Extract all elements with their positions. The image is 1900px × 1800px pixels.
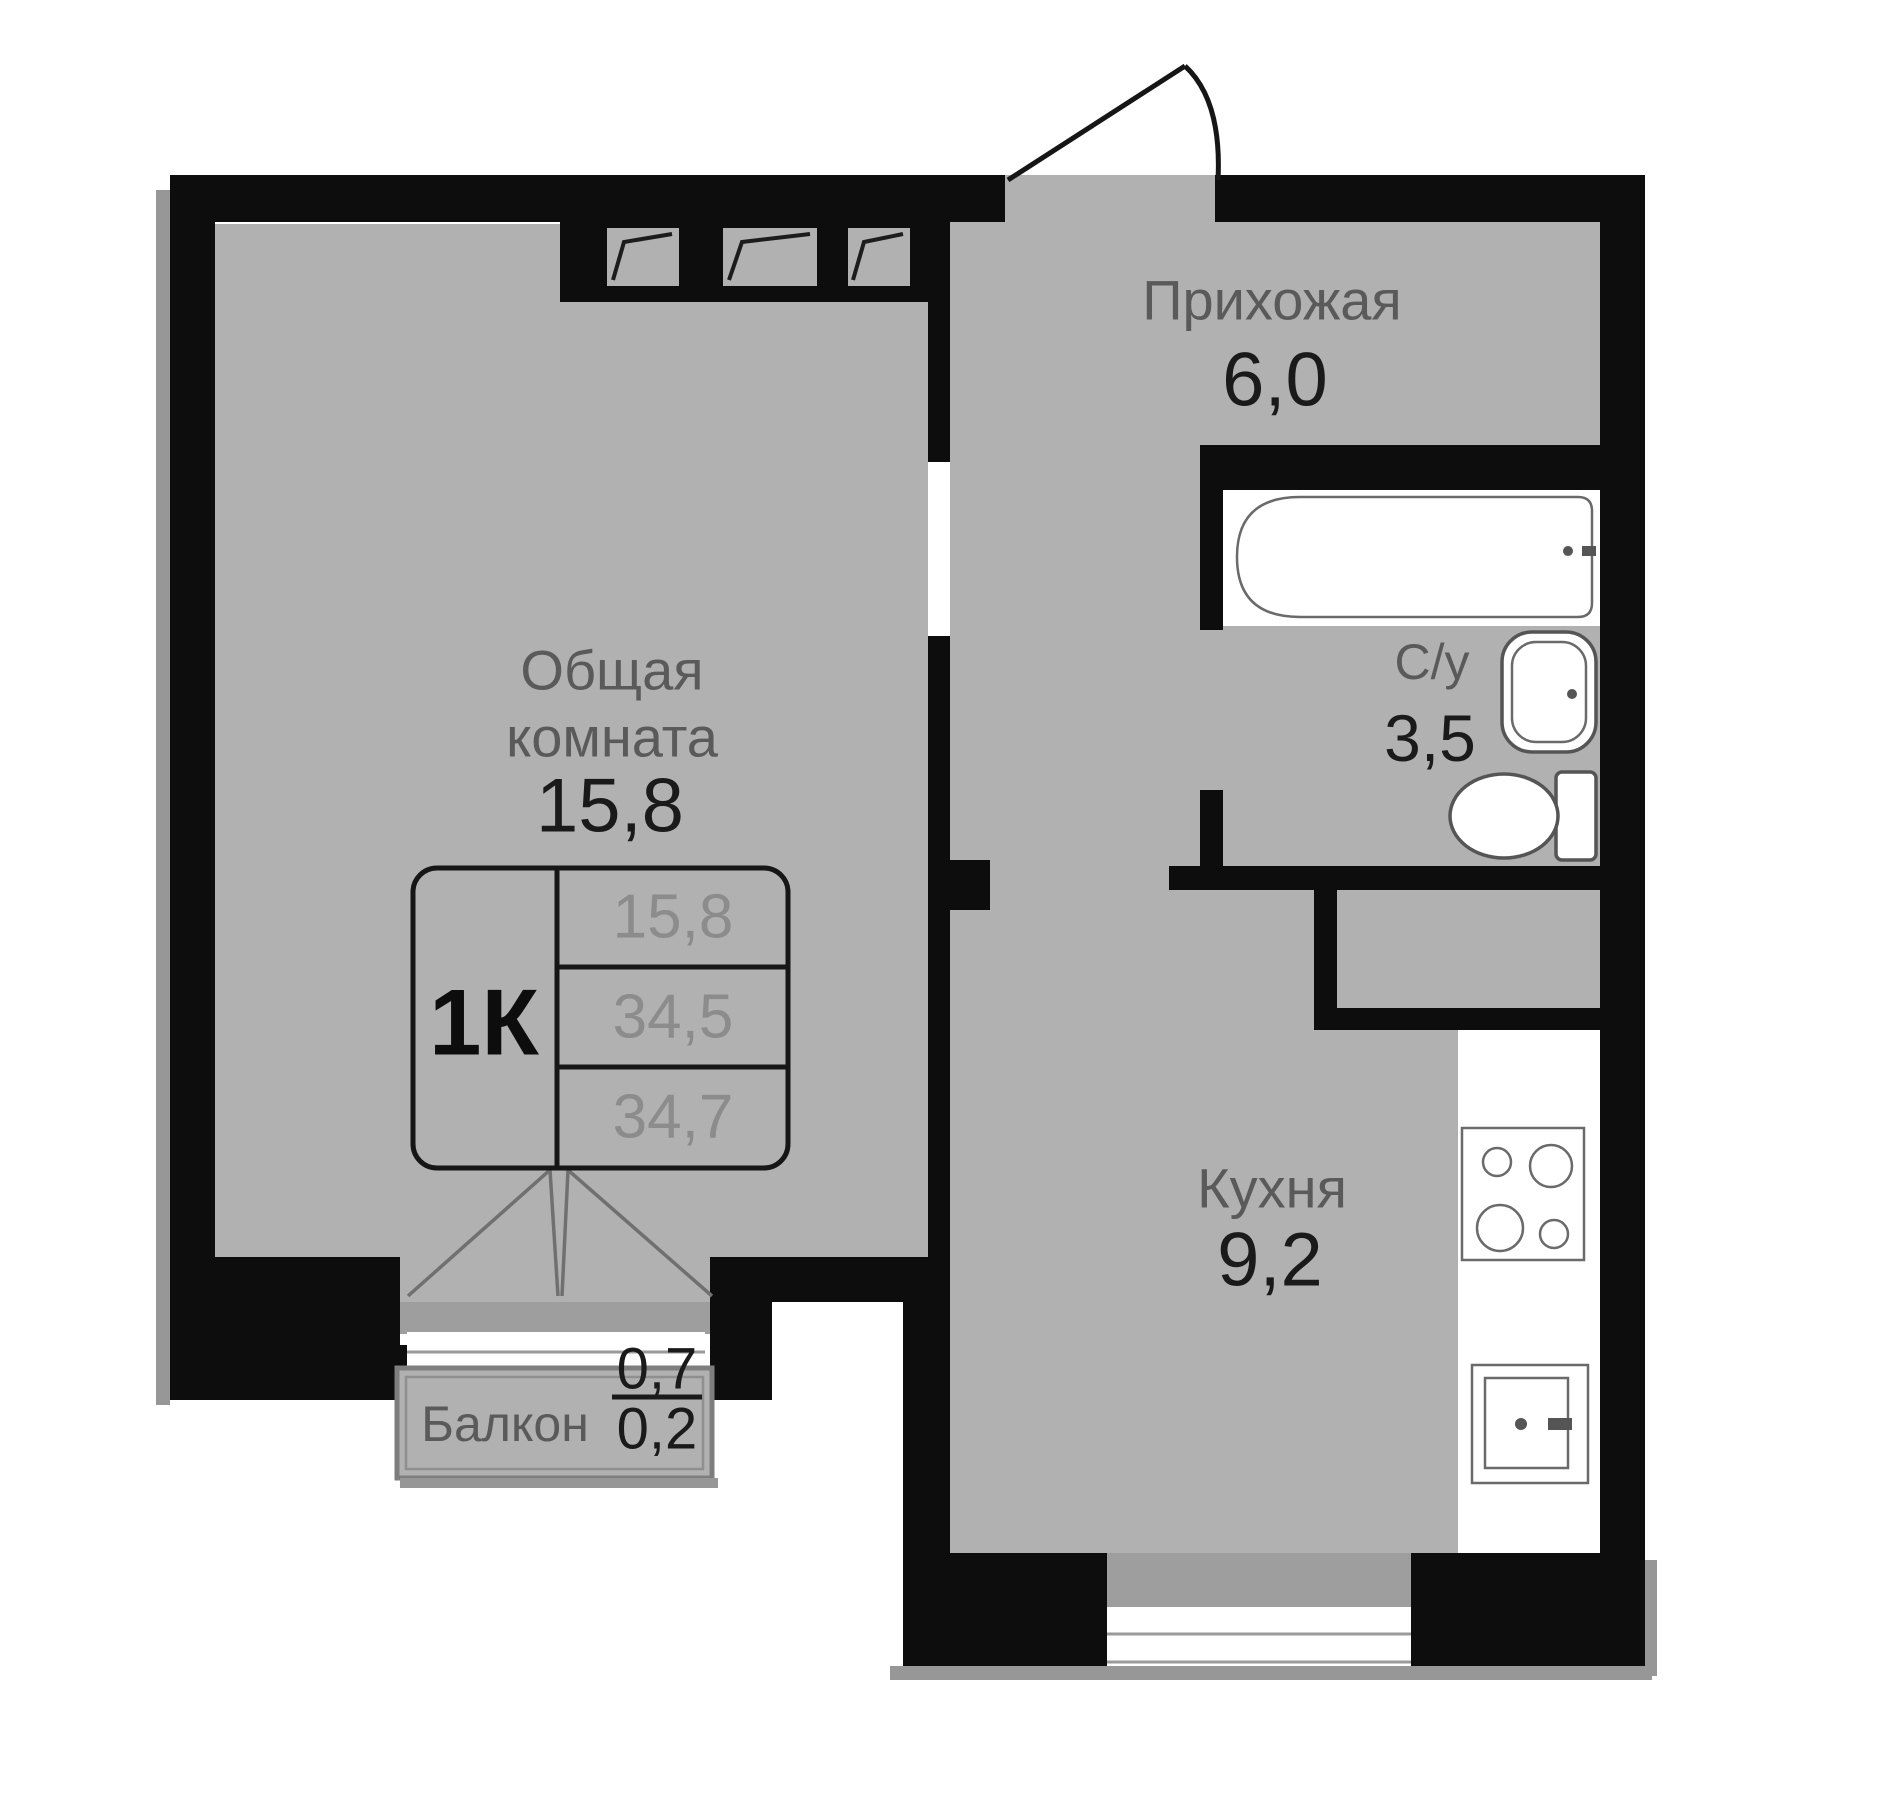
- wall-duct-vertical: [1314, 890, 1337, 1030]
- entrance-opening-floor: [1005, 175, 1215, 225]
- wall-right: [1600, 220, 1645, 1666]
- wall-bathroom-left-lower: [1200, 790, 1223, 866]
- table-value-row1: 15,8: [613, 883, 734, 952]
- kitchen-bay-window: [1107, 1607, 1411, 1666]
- balcony-area-full: 0,7: [617, 1337, 698, 1402]
- kitchen-fixtures: [1458, 1030, 1600, 1553]
- wall-balcony-left-jamb: [215, 1345, 407, 1400]
- vent-shaft-icon: [723, 228, 817, 286]
- wall-bathroom-left-upper: [1200, 490, 1223, 630]
- wall-living-bottom-left: [215, 1257, 400, 1345]
- balcony-threshold: [400, 1302, 710, 1334]
- living-room-label-line1: Общая: [520, 639, 703, 702]
- wall-bathroom-top: [1200, 445, 1600, 490]
- entrance-door-leaf: [1008, 66, 1185, 180]
- living-room-label-line2: комната: [506, 706, 719, 769]
- bathtub-zone: [1223, 490, 1600, 626]
- table-value-row3: 34,7: [613, 1083, 734, 1152]
- shadow-right-bottom: [1645, 1560, 1657, 1676]
- wall-duct-horizontal: [1337, 1008, 1600, 1030]
- kitchen-area: 9,2: [1217, 1218, 1323, 1303]
- kitchen-counter: [1458, 1030, 1600, 1553]
- wall-living-bottom-right: [710, 1257, 950, 1302]
- wall-bathroom-bottom: [1169, 866, 1600, 890]
- wall-divider-lower: [928, 636, 950, 1302]
- kitchen-bay-sill: [1107, 1553, 1411, 1609]
- toilet-icon: [1450, 772, 1596, 860]
- wall-corridor-stub: [950, 860, 990, 910]
- shadow-bottom: [890, 1666, 1652, 1680]
- wall-top-left: [170, 175, 1005, 222]
- wall-divider-upper: [928, 222, 950, 462]
- balcony-label: Балкон: [421, 1396, 589, 1452]
- vent-shafts: [607, 228, 910, 286]
- entrance-door-swing-icon: [1008, 66, 1218, 180]
- vent-shaft-icon: [848, 228, 910, 286]
- wall-balcony-right-jamb: [710, 1302, 772, 1400]
- bathroom-area: 3,5: [1384, 701, 1476, 775]
- floor-plan-page: Балкон 0,7 0,2 1К 15,8 34,5 34,7 Прихожа…: [0, 0, 1900, 1800]
- hallway-label: Прихожая: [1142, 269, 1402, 332]
- washbasin-icon: [1502, 632, 1596, 752]
- wall-divider-column: [903, 1302, 950, 1562]
- living-room-area: 15,8: [536, 764, 684, 849]
- wall-bottom-left-flank: [903, 1553, 1107, 1666]
- bathroom-label: С/у: [1395, 634, 1470, 690]
- wall-top-right: [1215, 175, 1645, 222]
- vent-shaft-icon: [607, 228, 679, 286]
- hallway-area: 6,0: [1222, 338, 1328, 423]
- wall-left: [170, 220, 215, 1400]
- table-value-row2: 34,5: [613, 983, 734, 1052]
- balcony-area-reduced: 0,2: [617, 1397, 698, 1462]
- entrance-door-arc: [1185, 66, 1218, 180]
- apartment-type: 1К: [429, 970, 539, 1075]
- shadow-left: [156, 190, 170, 1405]
- floor-plan-drawing: Балкон 0,7 0,2 1К 15,8 34,5 34,7 Прихожа…: [0, 0, 1900, 1800]
- kitchen-label: Кухня: [1197, 1157, 1347, 1220]
- wall-bottom-right-flank: [1411, 1553, 1645, 1666]
